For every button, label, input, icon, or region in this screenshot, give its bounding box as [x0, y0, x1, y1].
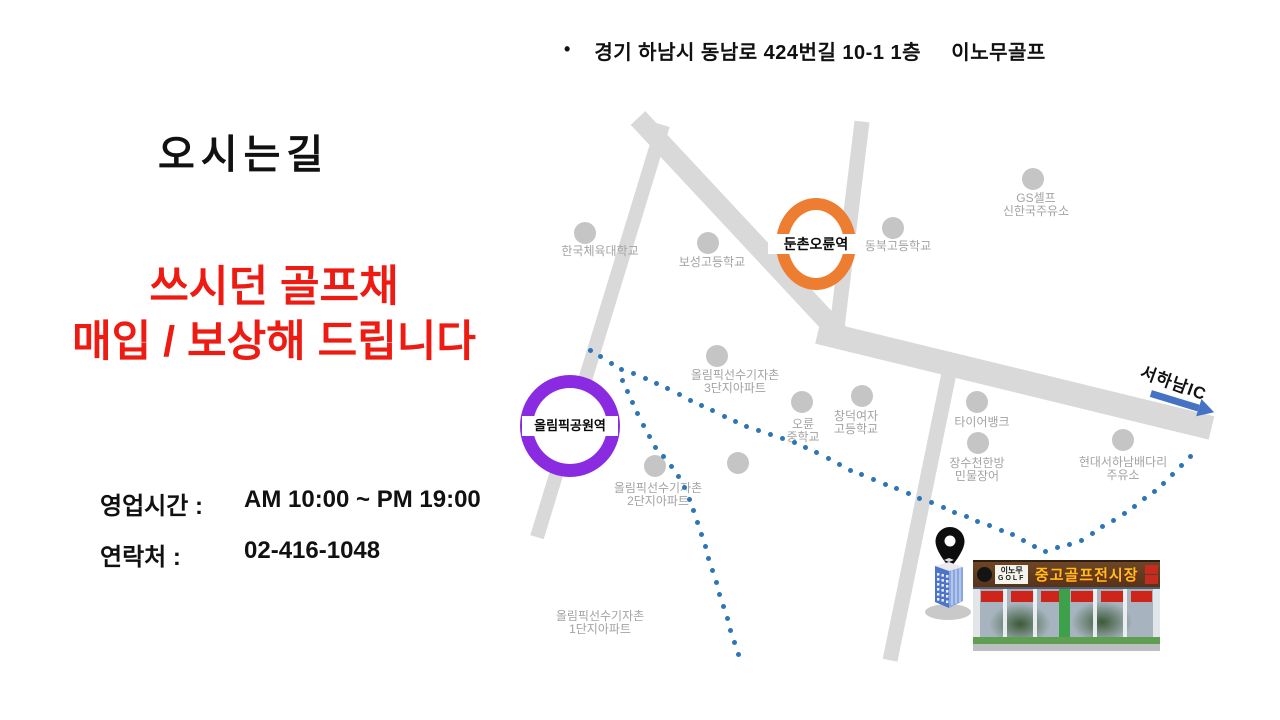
route-dot-main — [952, 510, 957, 515]
route-dot-main — [929, 500, 934, 505]
route-dot-branch — [625, 389, 630, 394]
route-dot-branch — [641, 423, 646, 428]
shop-sign: 이노무 GOLF 중고골프전시장 — [973, 560, 1160, 587]
route-dot-main — [859, 472, 864, 477]
sign-side-panel — [1145, 565, 1158, 574]
route-dot-main — [999, 528, 1004, 533]
landmark-label-line: 민물장어 — [897, 470, 1057, 483]
route-dot-main — [1122, 511, 1127, 516]
route-dot-branch — [653, 445, 658, 450]
route-dot-branch — [736, 652, 741, 657]
route-dot-branch — [714, 580, 719, 585]
route-dot-branch — [620, 378, 625, 383]
pavement — [973, 644, 1160, 651]
station-label: 둔촌오륜역 — [768, 234, 864, 254]
storefront-glass — [973, 587, 1160, 651]
route-dot-main — [941, 505, 946, 510]
route-dot-main — [1055, 545, 1060, 550]
landmark-dot — [1112, 429, 1134, 451]
route-dot-main — [987, 523, 992, 528]
landmark-dot — [967, 432, 989, 454]
landmark-label: GS셀프신한국주유소 — [956, 192, 1116, 218]
route-dot-main — [1142, 496, 1147, 501]
route-dot-main — [1043, 549, 1048, 554]
route-dot-branch — [728, 628, 733, 633]
route-dot-main — [1067, 542, 1072, 547]
landmark-label: 올림픽선수기자촌1단지아파트 — [520, 610, 680, 636]
route-dot-main — [1170, 472, 1175, 477]
route-dot-main — [631, 371, 636, 376]
route-dot-main — [1188, 454, 1193, 459]
route-dot-branch — [669, 464, 674, 469]
landmark-dot — [1022, 168, 1044, 190]
route-dot-branch — [695, 520, 700, 525]
route-dot-main — [975, 519, 980, 524]
sign-side-panel — [1145, 575, 1158, 584]
route-dot-main — [871, 477, 876, 482]
route-dot-main — [1152, 489, 1157, 494]
route-dot-main — [917, 496, 922, 501]
directions-slide: • 경기 하남시 동남로 424번길 10-1 1층 이노무골프 오시는길 쓰시… — [0, 0, 1280, 720]
route-dot-main — [1179, 463, 1184, 468]
landmark-dot — [851, 385, 873, 407]
route-dot-branch — [647, 434, 652, 439]
landmark-dot — [574, 222, 596, 244]
landmark-label-line: 타이어뱅크 — [902, 416, 1062, 429]
landmark-dot — [697, 232, 719, 254]
landmark-label-line: 1단지아파트 — [520, 623, 680, 636]
route-dot-main — [883, 482, 888, 487]
route-dot-main — [906, 491, 911, 496]
landmark-label: 타이어뱅크 — [902, 416, 1062, 429]
sign-side-panels — [1145, 565, 1158, 584]
shop-logo-text: 이노무 GOLF — [995, 565, 1028, 584]
shop-sign-text: 중고골프전시장 — [1028, 564, 1145, 585]
landmark-label: 보성고등학교 — [632, 256, 792, 269]
route-dot-main — [780, 436, 785, 441]
landmark-label-line: 보성고등학교 — [632, 256, 792, 269]
building-icon — [922, 554, 976, 622]
route-dot-branch — [710, 568, 715, 573]
route-dot-main — [1079, 538, 1084, 543]
landmark-label-line: 주유소 — [1043, 469, 1203, 482]
shop-logo-icon — [977, 567, 992, 582]
landmark-label-line: 2단지아파트 — [578, 495, 738, 508]
route-dot-main — [643, 376, 648, 381]
logo-line-2: GOLF — [998, 575, 1025, 582]
route-dot-main — [1111, 518, 1116, 523]
road-west — [530, 123, 669, 539]
route-dot-branch — [703, 544, 708, 549]
landmark-label: 장수천한방민물장어 — [897, 457, 1057, 483]
route-dot-main — [814, 450, 819, 455]
route-dot-branch — [721, 604, 726, 609]
route-dot-main — [588, 348, 593, 353]
landmark-dot — [966, 391, 988, 413]
landmark-label: 현대서하남배다리주유소 — [1043, 456, 1203, 482]
landmark-label: 올림픽선수기자촌2단지아파트 — [578, 482, 738, 508]
route-dot-main — [826, 456, 831, 461]
station-label: 올림픽공원역 — [522, 416, 618, 436]
landmark-label-line: 신한국주유소 — [956, 205, 1116, 218]
route-dot-branch — [725, 616, 730, 621]
turf-strip — [973, 637, 1160, 644]
route-dot-main — [1100, 524, 1105, 529]
route-dot-branch — [691, 508, 696, 513]
route-dot-main — [1132, 504, 1137, 509]
route-dot-main — [1090, 531, 1095, 536]
route-dot-main — [837, 462, 842, 467]
route-dot-branch — [635, 411, 640, 416]
route-dot-main — [619, 367, 624, 372]
route-dot-main — [1161, 481, 1166, 486]
storefront-photo: 이노무 GOLF 중고골프전시장 — [973, 560, 1160, 651]
route-dot-main — [1021, 538, 1026, 543]
route-dot-main — [848, 468, 853, 473]
route-dot-branch — [717, 592, 722, 597]
route-dot-main — [688, 398, 693, 403]
landmark-dot — [882, 217, 904, 239]
route-dot-branch — [630, 400, 635, 405]
lintel — [973, 587, 1160, 589]
route-dot-main — [894, 486, 899, 491]
route-dot-main — [677, 392, 682, 397]
route-dot-main — [598, 354, 603, 359]
route-dot-main — [1032, 544, 1037, 549]
landmark-dot — [706, 345, 728, 367]
logo-line-1: 이노무 — [998, 567, 1025, 575]
route-dot-main — [722, 414, 727, 419]
route-dot-branch — [661, 454, 666, 459]
route-dot-main — [1010, 532, 1015, 537]
route-dot-main — [792, 440, 797, 445]
route-dot-main — [710, 408, 715, 413]
route-dot-main — [699, 403, 704, 408]
route-dot-main — [964, 514, 969, 519]
route-dot-branch — [687, 497, 692, 502]
landmark-dot — [727, 452, 749, 474]
route-dot-branch — [676, 474, 681, 479]
route-dot-branch — [699, 532, 704, 537]
route-dot-main — [733, 419, 738, 424]
route-dot-branch — [682, 485, 687, 490]
route-dot-branch — [706, 556, 711, 561]
route-dot-main — [609, 361, 614, 366]
route-dot-branch — [732, 640, 737, 645]
route-dot-main — [803, 445, 808, 450]
